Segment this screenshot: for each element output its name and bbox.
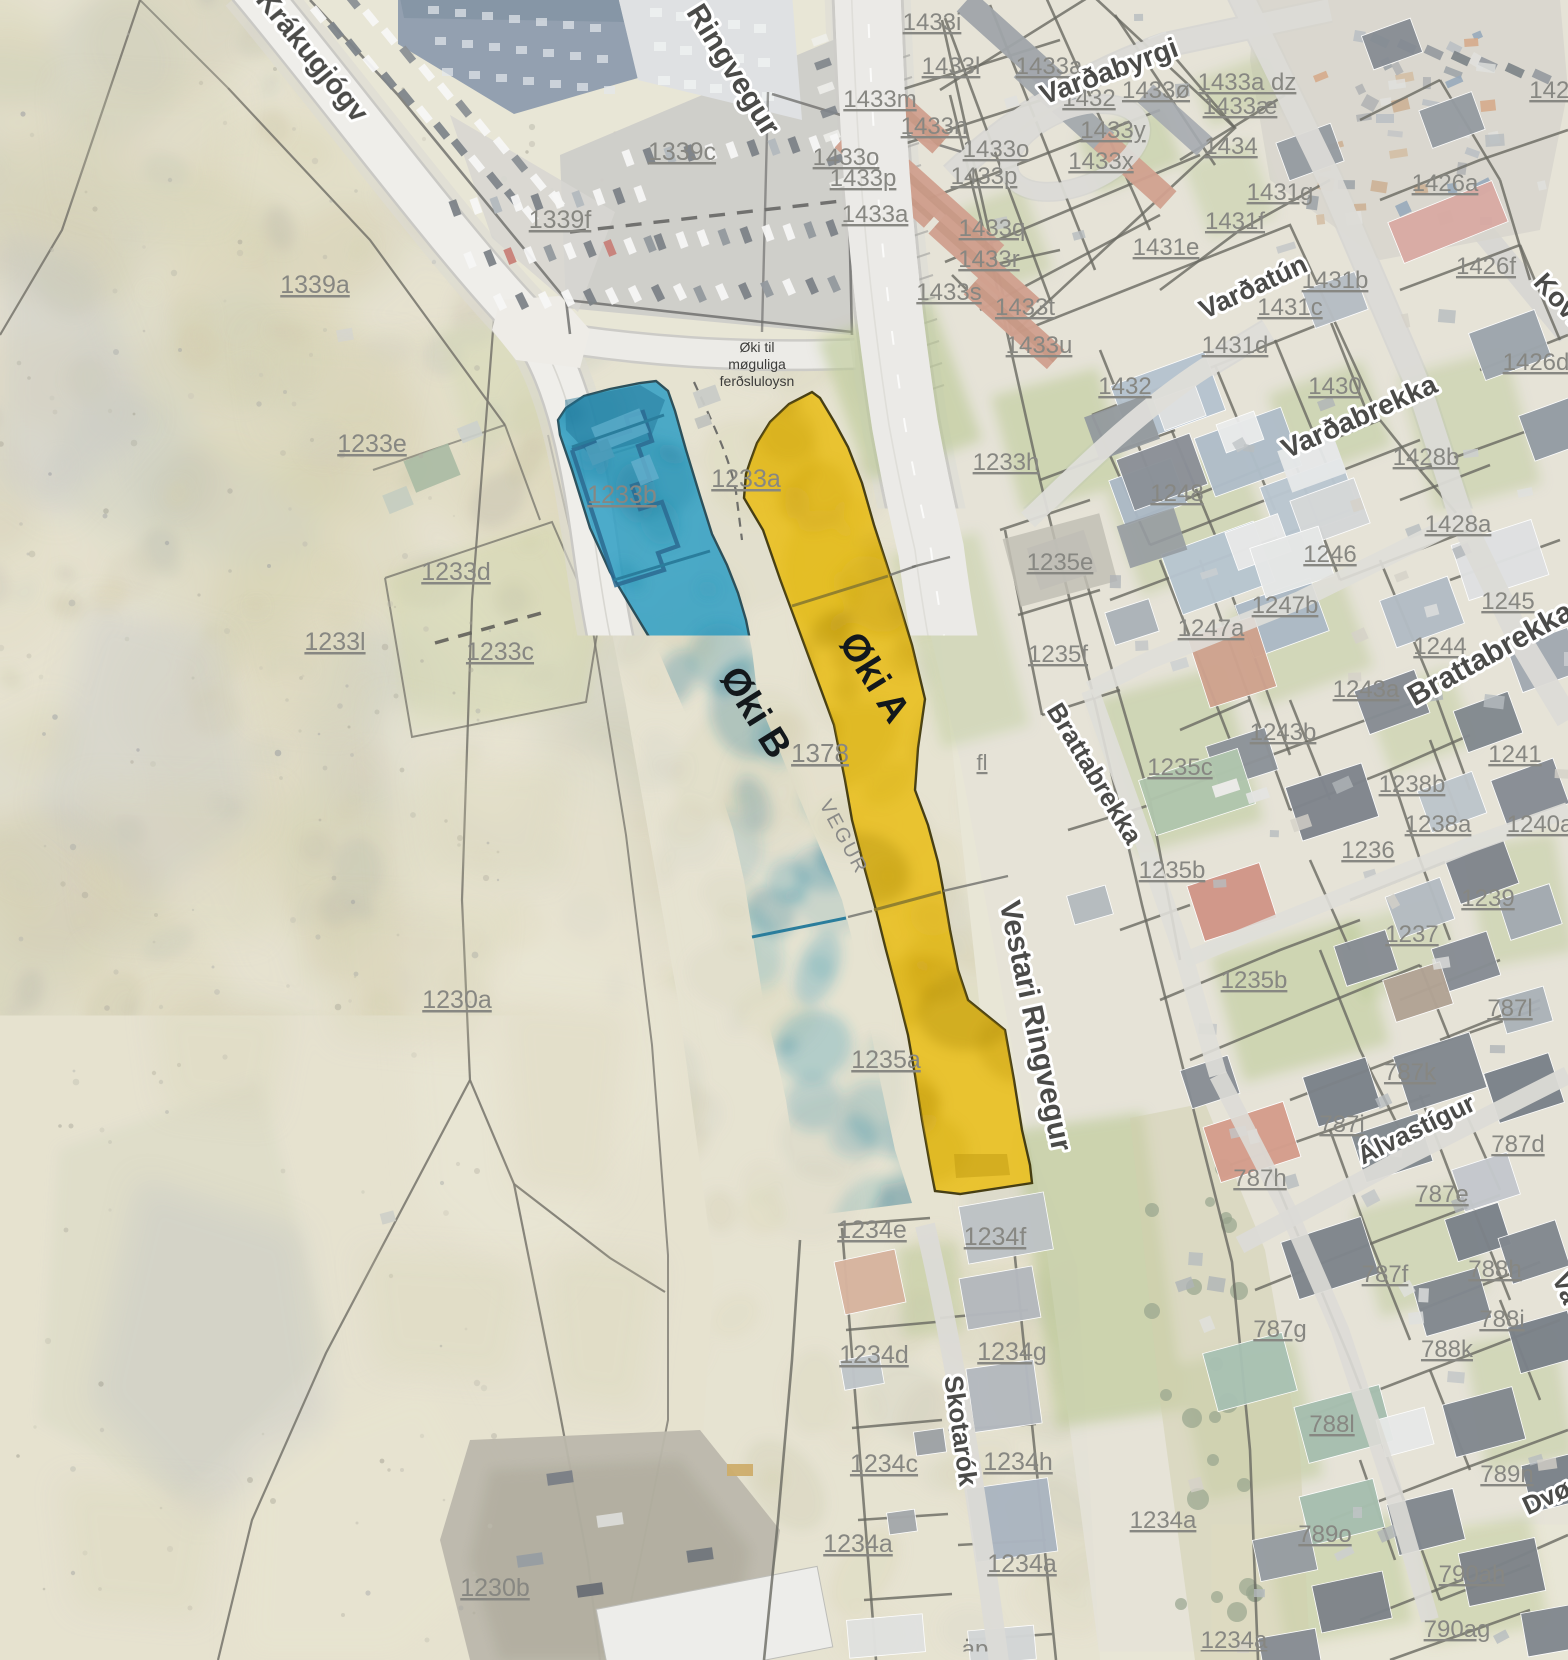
svg-text:1234d: 1234d [839, 1341, 909, 1369]
svg-text:1426f: 1426f [1456, 253, 1516, 280]
svg-text:1230b: 1230b [460, 1574, 530, 1602]
svg-text:1236: 1236 [1341, 837, 1394, 864]
svg-text:788l: 788l [1309, 1411, 1354, 1438]
svg-text:1241: 1241 [1488, 741, 1541, 768]
svg-text:1234e: 1234e [837, 1216, 907, 1244]
svg-text:787e: 787e [1415, 1181, 1468, 1208]
svg-text:1433m: 1433m [843, 86, 916, 113]
svg-text:1247b: 1247b [1252, 592, 1319, 619]
svg-text:1433æ: 1433æ [1203, 93, 1278, 120]
svg-text:1339c: 1339c [648, 138, 716, 166]
svg-text:787d: 787d [1491, 1131, 1544, 1158]
svg-text:790ag: 790ag [1424, 1616, 1491, 1643]
svg-text:1234f: 1234f [964, 1223, 1027, 1251]
svg-text:1233l: 1233l [304, 628, 365, 656]
svg-text:1431c: 1431c [1257, 294, 1322, 321]
svg-text:1433a dz: 1433a dz [1198, 69, 1297, 96]
svg-text:1235b: 1235b [1139, 857, 1206, 884]
svg-text:ap: ap [962, 1636, 989, 1660]
svg-text:1233a: 1233a [711, 465, 781, 493]
svg-text:1378: 1378 [791, 738, 849, 768]
svg-text:møguliga: møguliga [728, 356, 786, 372]
svg-text:787l: 787l [1487, 995, 1532, 1022]
svg-text:1234h: 1234h [983, 1448, 1053, 1476]
svg-text:1433s: 1433s [916, 279, 981, 306]
svg-text:1234a: 1234a [823, 1530, 893, 1558]
svg-text:1431e: 1431e [1133, 234, 1200, 261]
svg-text:1339f: 1339f [529, 206, 592, 234]
svg-text:790ah: 790ah [1439, 1561, 1506, 1588]
svg-text:788h: 788h [1468, 1256, 1521, 1283]
svg-text:1428a: 1428a [1425, 511, 1492, 538]
svg-text:1433i: 1433i [903, 9, 962, 36]
svg-text:1433a: 1433a [842, 201, 909, 228]
svg-text:1431b: 1431b [1302, 267, 1369, 294]
svg-text:1433q: 1433q [959, 215, 1026, 242]
svg-text:1234a: 1234a [987, 1550, 1057, 1578]
svg-text:1431g: 1431g [1247, 179, 1314, 206]
svg-text:1432: 1432 [1098, 373, 1151, 400]
svg-text:1234c: 1234c [850, 1450, 918, 1478]
svg-text:1234a: 1234a [1130, 1507, 1197, 1534]
svg-text:787f: 787f [1362, 1261, 1409, 1288]
svg-text:1426: 1426 [1529, 77, 1568, 104]
svg-text:787h: 787h [1233, 1165, 1286, 1192]
svg-text:787i: 787i [1319, 1111, 1364, 1138]
svg-text:1238b: 1238b [1379, 771, 1446, 798]
svg-text:788k: 788k [1421, 1336, 1474, 1363]
svg-text:787k: 787k [1384, 1059, 1437, 1086]
svg-text:788i: 788i [1479, 1306, 1524, 1333]
svg-text:1433n: 1433n [901, 113, 968, 140]
svg-text:1233h: 1233h [973, 449, 1040, 476]
svg-text:1433x: 1433x [1068, 148, 1133, 175]
svg-text:1430: 1430 [1308, 373, 1361, 400]
svg-text:1433r: 1433r [958, 246, 1019, 273]
svg-text:1237: 1237 [1385, 921, 1438, 948]
svg-text:1233c: 1233c [466, 638, 534, 666]
svg-text:1235a: 1235a [851, 1046, 921, 1074]
svg-text:1235b: 1235b [1221, 967, 1288, 994]
svg-text:789n: 789n [1480, 1461, 1533, 1488]
svg-text:1243b: 1243b [1250, 719, 1317, 746]
svg-text:1433p: 1433p [830, 165, 897, 192]
svg-text:fl: fl [977, 750, 988, 775]
svg-text:1234a: 1234a [1201, 1627, 1268, 1654]
svg-text:1433l: 1433l [922, 53, 981, 80]
svg-text:1428b: 1428b [1393, 444, 1460, 471]
svg-text:1240a: 1240a [1507, 811, 1568, 838]
svg-text:1245: 1245 [1481, 588, 1534, 615]
svg-text:1431f: 1431f [1205, 208, 1265, 235]
svg-text:1246: 1246 [1303, 541, 1356, 568]
svg-text:1433o: 1433o [963, 136, 1030, 163]
svg-text:Øki til: Øki til [740, 339, 775, 355]
svg-text:1426a: 1426a [1412, 170, 1479, 197]
svg-text:1235c: 1235c [1147, 754, 1212, 781]
svg-text:1235f: 1235f [1028, 641, 1088, 668]
svg-text:1248: 1248 [1150, 480, 1203, 507]
svg-text:1433t: 1433t [995, 294, 1055, 321]
svg-text:1426d: 1426d [1503, 349, 1568, 376]
svg-text:1433ø: 1433ø [1122, 77, 1190, 104]
svg-text:1433y: 1433y [1080, 117, 1145, 144]
svg-text:1433u: 1433u [1006, 332, 1073, 359]
svg-text:1339a: 1339a [280, 271, 350, 299]
svg-text:789o: 789o [1298, 1521, 1351, 1548]
svg-text:1238a: 1238a [1405, 811, 1472, 838]
svg-text:1233e: 1233e [337, 430, 407, 458]
svg-text:1434: 1434 [1204, 133, 1257, 160]
svg-text:1239: 1239 [1461, 885, 1514, 912]
svg-text:1233b: 1233b [587, 481, 657, 509]
svg-text:1243a: 1243a [1333, 676, 1400, 703]
svg-text:1433p: 1433p [951, 163, 1018, 190]
svg-text:ferðsluloysn: ferðsluloysn [720, 373, 795, 389]
svg-text:1431d: 1431d [1202, 332, 1269, 359]
svg-text:787g: 787g [1253, 1316, 1306, 1343]
svg-text:1235e: 1235e [1027, 549, 1094, 576]
svg-text:1234g: 1234g [977, 1338, 1047, 1366]
svg-text:1247a: 1247a [1178, 615, 1245, 642]
svg-text:1230a: 1230a [422, 986, 492, 1014]
svg-text:1233d: 1233d [421, 558, 491, 586]
